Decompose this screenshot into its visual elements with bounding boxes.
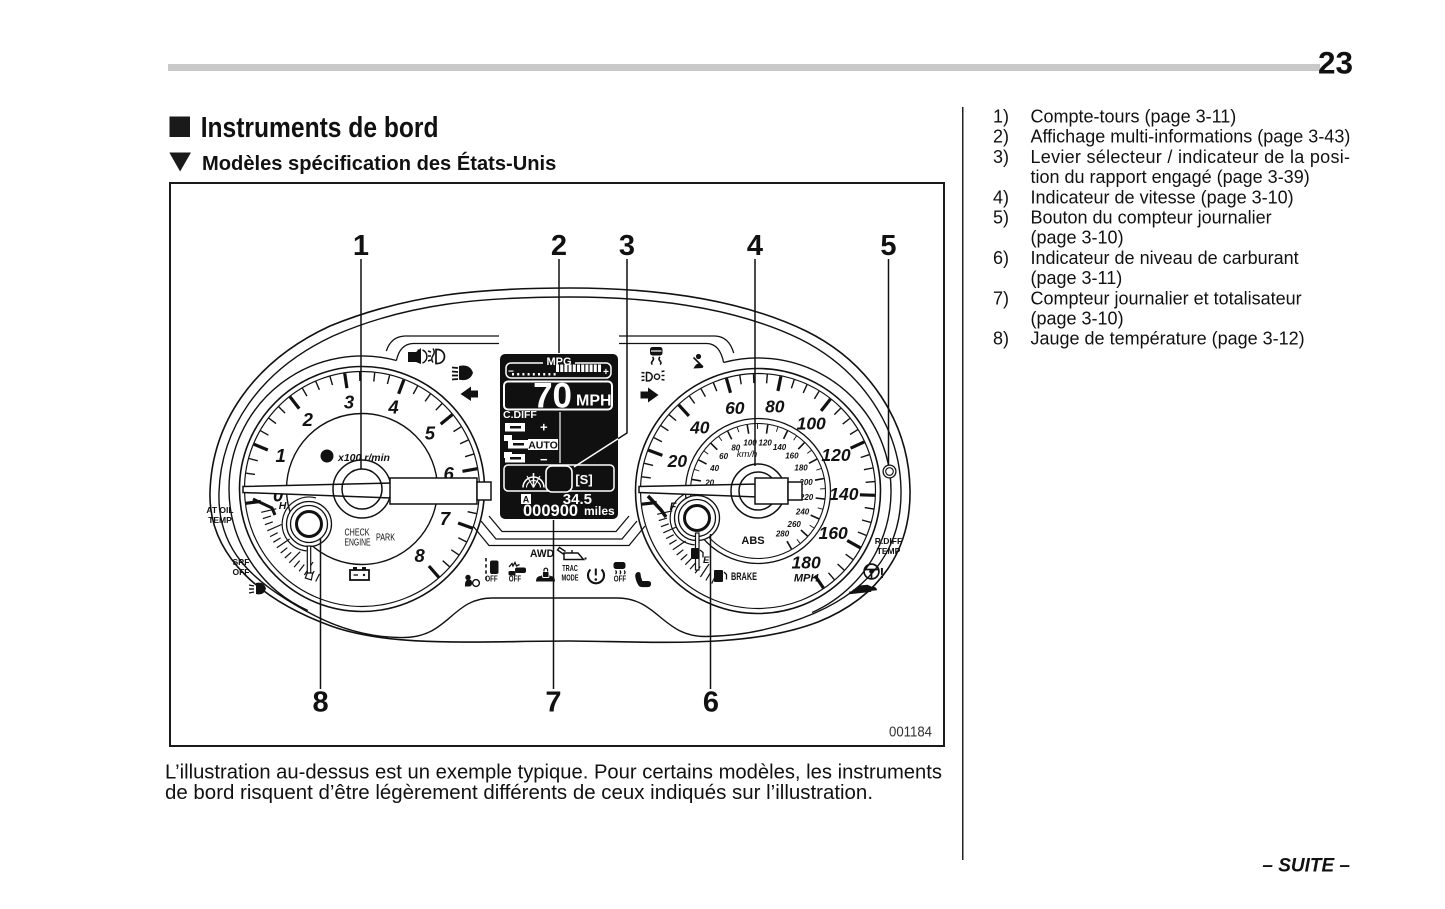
svg-text:3: 3 <box>619 230 635 262</box>
svg-text:AWD: AWD <box>530 548 554 560</box>
svg-text:E: E <box>703 555 710 566</box>
svg-text:(page 3-11): (page 3-11) <box>1031 268 1123 288</box>
svg-text:2): 2) <box>993 127 1009 147</box>
svg-text:Affichage multi-informations (: Affichage multi-informations (page 3-43) <box>1031 127 1351 147</box>
svg-text:OFF: OFF <box>614 574 627 584</box>
svg-text:8): 8) <box>993 329 1009 349</box>
svg-text:miles: miles <box>584 504 615 518</box>
svg-text:ABS: ABS <box>741 535 764 547</box>
svg-text:4: 4 <box>387 396 398 417</box>
svg-text:7): 7) <box>993 288 1009 308</box>
svg-text:4: 4 <box>747 230 763 262</box>
svg-text:TRAC: TRAC <box>562 563 578 573</box>
svg-text:SRF: SRF <box>233 557 250 567</box>
svg-text:PARK: PARK <box>376 533 395 544</box>
svg-text:8: 8 <box>415 545 426 566</box>
svg-text:C.DIFF: C.DIFF <box>503 409 537 421</box>
svg-text:Compte-tours (page 3-11): Compte-tours (page 3-11) <box>1031 107 1237 127</box>
svg-text:2: 2 <box>551 230 567 262</box>
svg-text:(page 3-10): (page 3-10) <box>1031 228 1124 248</box>
svg-text:260: 260 <box>787 520 802 529</box>
svg-text:7: 7 <box>440 508 452 529</box>
svg-text:120: 120 <box>821 445 850 465</box>
svg-text:TEMP: TEMP <box>208 515 232 525</box>
svg-text:160: 160 <box>819 523 848 543</box>
svg-text:H: H <box>279 500 287 512</box>
svg-text:40: 40 <box>689 418 710 438</box>
svg-text:000900: 000900 <box>523 502 578 520</box>
svg-text:R.DIFF: R.DIFF <box>875 536 902 546</box>
svg-text:AT OIL: AT OIL <box>206 505 233 515</box>
svg-text:8: 8 <box>313 687 329 719</box>
svg-text:tion du rapport engagé (page 3: tion du rapport engagé (page 3-39) <box>1031 167 1310 187</box>
svg-text:Jauge de température (page 3-1: Jauge de température (page 3-12) <box>1031 329 1305 349</box>
svg-text:140: 140 <box>829 484 858 504</box>
svg-text:160: 160 <box>785 452 799 461</box>
svg-text:60: 60 <box>725 398 745 418</box>
svg-text:1: 1 <box>276 445 286 466</box>
svg-text:BRAKE: BRAKE <box>731 571 757 583</box>
svg-text:4): 4) <box>993 187 1009 207</box>
svg-text:Instruments de bord: Instruments de bord <box>201 112 439 144</box>
svg-text:Bouton du compteur journalier: Bouton du compteur journalier <box>1031 208 1272 228</box>
svg-text:!: ! <box>880 566 885 582</box>
svg-text:5: 5 <box>425 423 436 444</box>
svg-text:3: 3 <box>344 392 355 413</box>
svg-text:OFF: OFF <box>509 574 522 584</box>
svg-text:3): 3) <box>993 147 1009 167</box>
svg-text:OFF: OFF <box>485 574 498 584</box>
svg-text:MPH: MPH <box>576 393 612 410</box>
svg-text:140: 140 <box>773 443 787 452</box>
svg-text:L’illustration au-dessus est u: L’illustration au-dessus est un exemple … <box>165 762 942 784</box>
svg-text:[S]: [S] <box>575 472 592 487</box>
svg-text:−: − <box>508 367 514 378</box>
svg-text:TEMP: TEMP <box>877 546 901 556</box>
svg-text:1: 1 <box>353 230 369 262</box>
svg-text:6: 6 <box>703 687 719 719</box>
svg-text:AUTO: AUTO <box>528 440 558 452</box>
svg-text:2: 2 <box>302 409 314 430</box>
svg-text:20: 20 <box>667 451 688 471</box>
svg-text:5): 5) <box>993 208 1009 228</box>
svg-text:Compteur journalier et totalis: Compteur journalier et totalisateur <box>1031 288 1302 308</box>
svg-text:180: 180 <box>794 464 808 473</box>
svg-text:6): 6) <box>993 248 1009 268</box>
svg-text:180: 180 <box>791 552 820 572</box>
svg-text:+: + <box>603 367 609 378</box>
svg-text:ENGINE: ENGINE <box>345 538 371 549</box>
svg-text:120: 120 <box>759 439 773 448</box>
svg-text:7: 7 <box>545 687 561 719</box>
svg-text:23: 23 <box>1318 45 1353 81</box>
svg-text:Indicateur de vitesse (page 3-: Indicateur de vitesse (page 3-10) <box>1031 187 1294 207</box>
svg-text:70: 70 <box>533 377 572 416</box>
svg-text:60: 60 <box>719 452 728 461</box>
svg-text:001184: 001184 <box>889 725 932 741</box>
svg-text:x100 r/min: x100 r/min <box>337 452 390 464</box>
svg-text:– SUITE –: – SUITE – <box>1262 856 1350 877</box>
svg-text:240: 240 <box>795 507 810 516</box>
svg-text:OFF: OFF <box>233 567 250 577</box>
svg-text:280: 280 <box>775 529 790 538</box>
svg-text:MODE: MODE <box>562 573 579 583</box>
svg-text:100: 100 <box>797 413 826 433</box>
svg-text:Modèles spécification des État: Modèles spécification des États-Unis <box>202 152 556 175</box>
svg-text:MPH: MPH <box>794 572 820 584</box>
svg-text:km/h: km/h <box>737 449 758 460</box>
svg-text:Indicateur de niveau de carbur: Indicateur de niveau de carburant <box>1031 248 1299 268</box>
svg-text:5: 5 <box>880 230 896 262</box>
svg-text:40: 40 <box>709 464 719 473</box>
svg-text:80: 80 <box>765 397 785 417</box>
svg-text:(page 3-10): (page 3-10) <box>1031 309 1124 329</box>
svg-text:+: + <box>540 420 548 435</box>
svg-text:Levier sélecteur / indicateur: Levier sélecteur / indicateur de la posi… <box>1031 147 1351 167</box>
svg-text:1): 1) <box>993 107 1009 127</box>
svg-text:de bord risquent d’être légère: de bord risquent d’être légèrement diffé… <box>165 782 873 804</box>
